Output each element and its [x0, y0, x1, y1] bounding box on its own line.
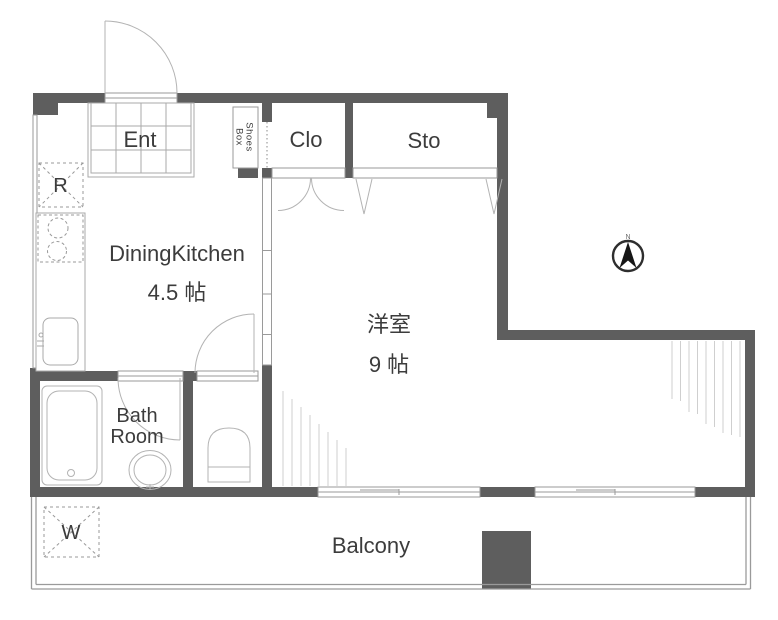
entrance-threshold: [105, 93, 177, 103]
label-bath-line2: Room: [110, 426, 163, 448]
bathtub: [42, 386, 102, 485]
closet-double-door: [278, 178, 344, 211]
wall-stub-shoesbox: [238, 167, 258, 178]
wall-dk-closet: [262, 93, 272, 122]
window-room-left: [318, 487, 480, 497]
wall-clo-sto-divider: [345, 103, 353, 178]
wall-top-main: [177, 93, 508, 103]
label-western-room: 洋室: [367, 312, 411, 337]
walls: [30, 93, 755, 589]
window-room-right: [535, 487, 695, 497]
wall-left-top: [33, 93, 41, 115]
wall-left-notch: [41, 103, 58, 115]
wall-bottom-a: [30, 487, 318, 497]
label-dining-kitchen-size: 4.5 帖: [148, 280, 207, 305]
label-bath-line1: Bath: [116, 405, 157, 427]
wall-toilet-left: [183, 381, 193, 487]
toilet-door-threshold: [197, 371, 258, 381]
sloped-ceiling-hatch: [283, 341, 740, 486]
toilet: [208, 428, 250, 482]
bath-door-threshold: [118, 371, 183, 381]
storage-front-track: [353, 168, 497, 178]
wash-basin: [129, 451, 171, 491]
label-shoes-box-line2: Box: [234, 128, 245, 146]
wall-right-main: [497, 93, 508, 340]
wall-dk-bath: [30, 371, 118, 381]
label-washer: W: [62, 522, 81, 544]
compass: N: [613, 234, 643, 271]
closet-front-track: [272, 168, 345, 178]
storage-folding-door: [356, 179, 502, 214]
label-storage: Sto: [407, 128, 440, 153]
wall-extension-top: [497, 330, 755, 340]
label-entrance: Ent: [123, 127, 156, 152]
balcony-pillar: [482, 531, 531, 589]
wall-toilet-right: [262, 363, 272, 487]
wall-top-left: [33, 93, 105, 103]
wall-bottom-b: [480, 487, 535, 497]
label-western-room-size: 9 帖: [369, 352, 409, 377]
wall-bottom-c: [695, 487, 755, 497]
label-dining-kitchen: DiningKitchen: [109, 241, 245, 266]
entrance-door: [105, 21, 177, 93]
label-closet: Clo: [289, 127, 322, 152]
wall-bath-left: [30, 368, 40, 497]
toilet-door: [195, 314, 254, 373]
wall-extension-right: [745, 330, 755, 497]
label-refrigerator: R: [53, 175, 67, 197]
floor-plan: N Ent Clo Sto DiningKitchen 4.5 帖 洋室 9 帖…: [0, 0, 778, 620]
sliding-partition: [263, 178, 272, 365]
label-balcony: Balcony: [332, 533, 410, 558]
wall-stub-clo-left: [262, 168, 272, 178]
